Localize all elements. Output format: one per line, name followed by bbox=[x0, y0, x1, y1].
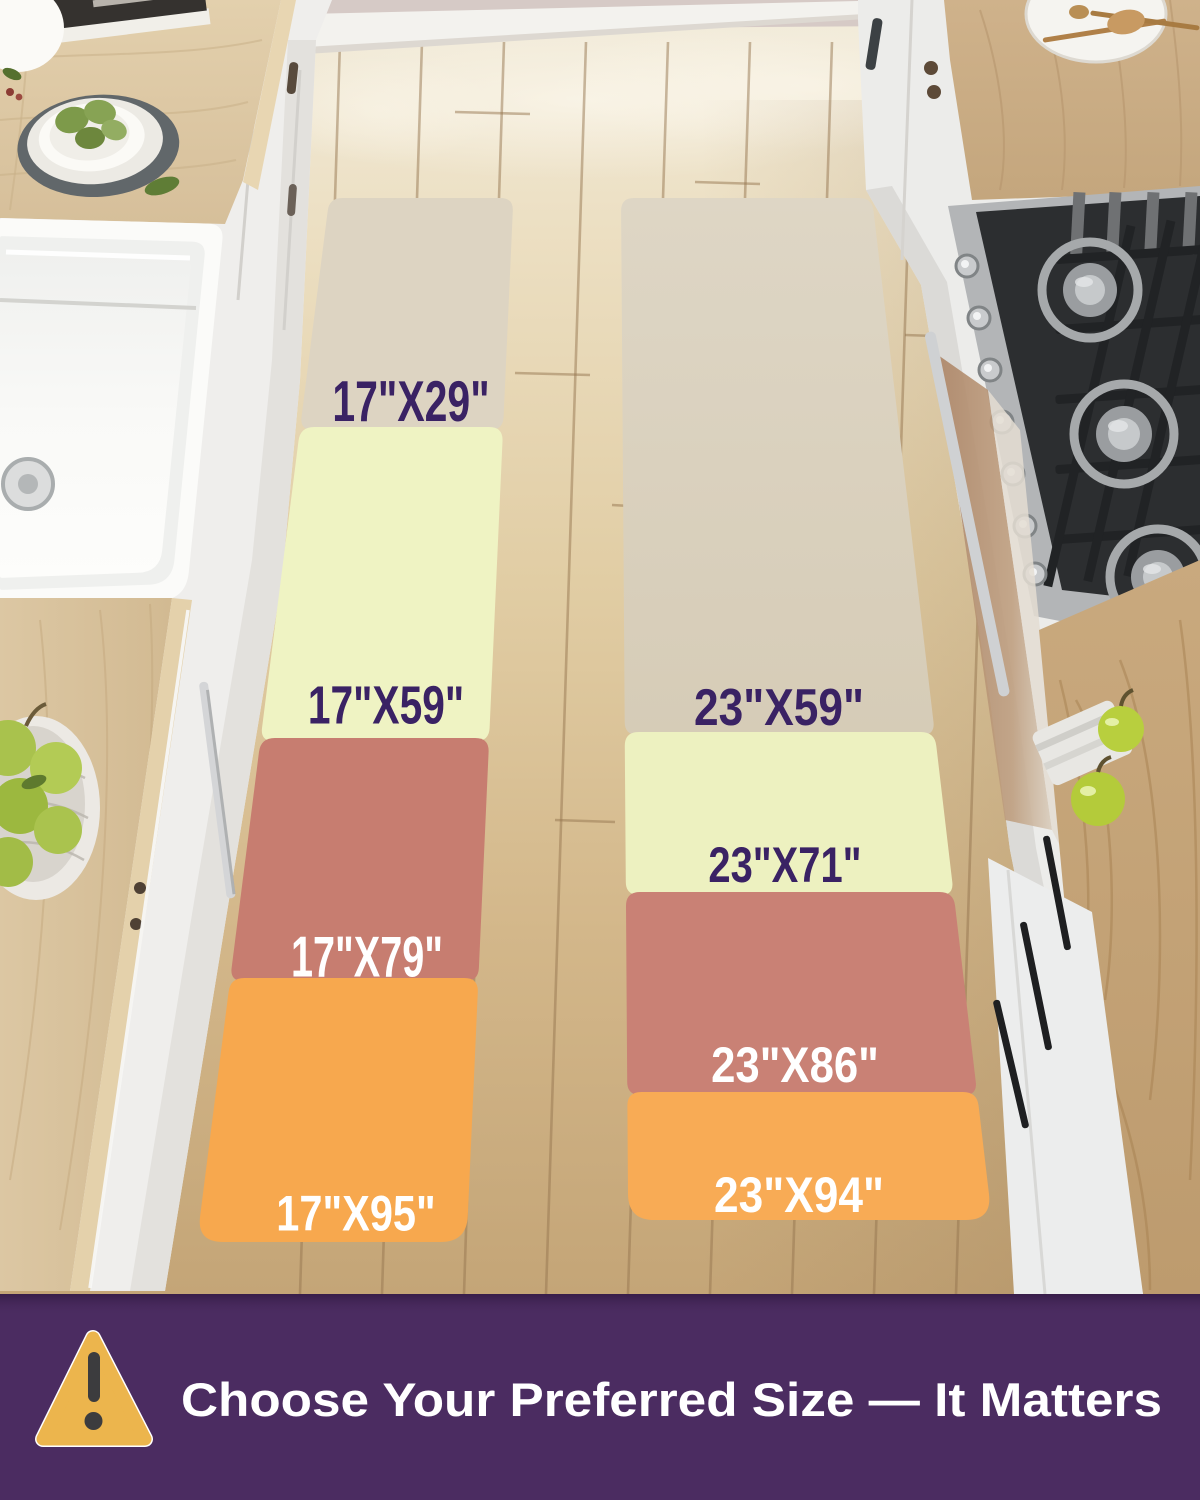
svg-text:23"X86": 23"X86" bbox=[711, 1036, 879, 1093]
svg-text:23"X94": 23"X94" bbox=[714, 1166, 884, 1223]
svg-text:Choose Your Preferred Size — I: Choose Your Preferred Size — It Matters bbox=[181, 1374, 1162, 1427]
svg-text:23"X59": 23"X59" bbox=[694, 679, 864, 737]
svg-text:17"X79": 17"X79" bbox=[291, 926, 443, 990]
svg-text:17"X95": 17"X95" bbox=[276, 1185, 435, 1242]
svg-text:23"X71": 23"X71" bbox=[708, 836, 861, 893]
svg-text:17"X59": 17"X59" bbox=[308, 677, 464, 736]
svg-text:17"X29": 17"X29" bbox=[332, 370, 489, 434]
